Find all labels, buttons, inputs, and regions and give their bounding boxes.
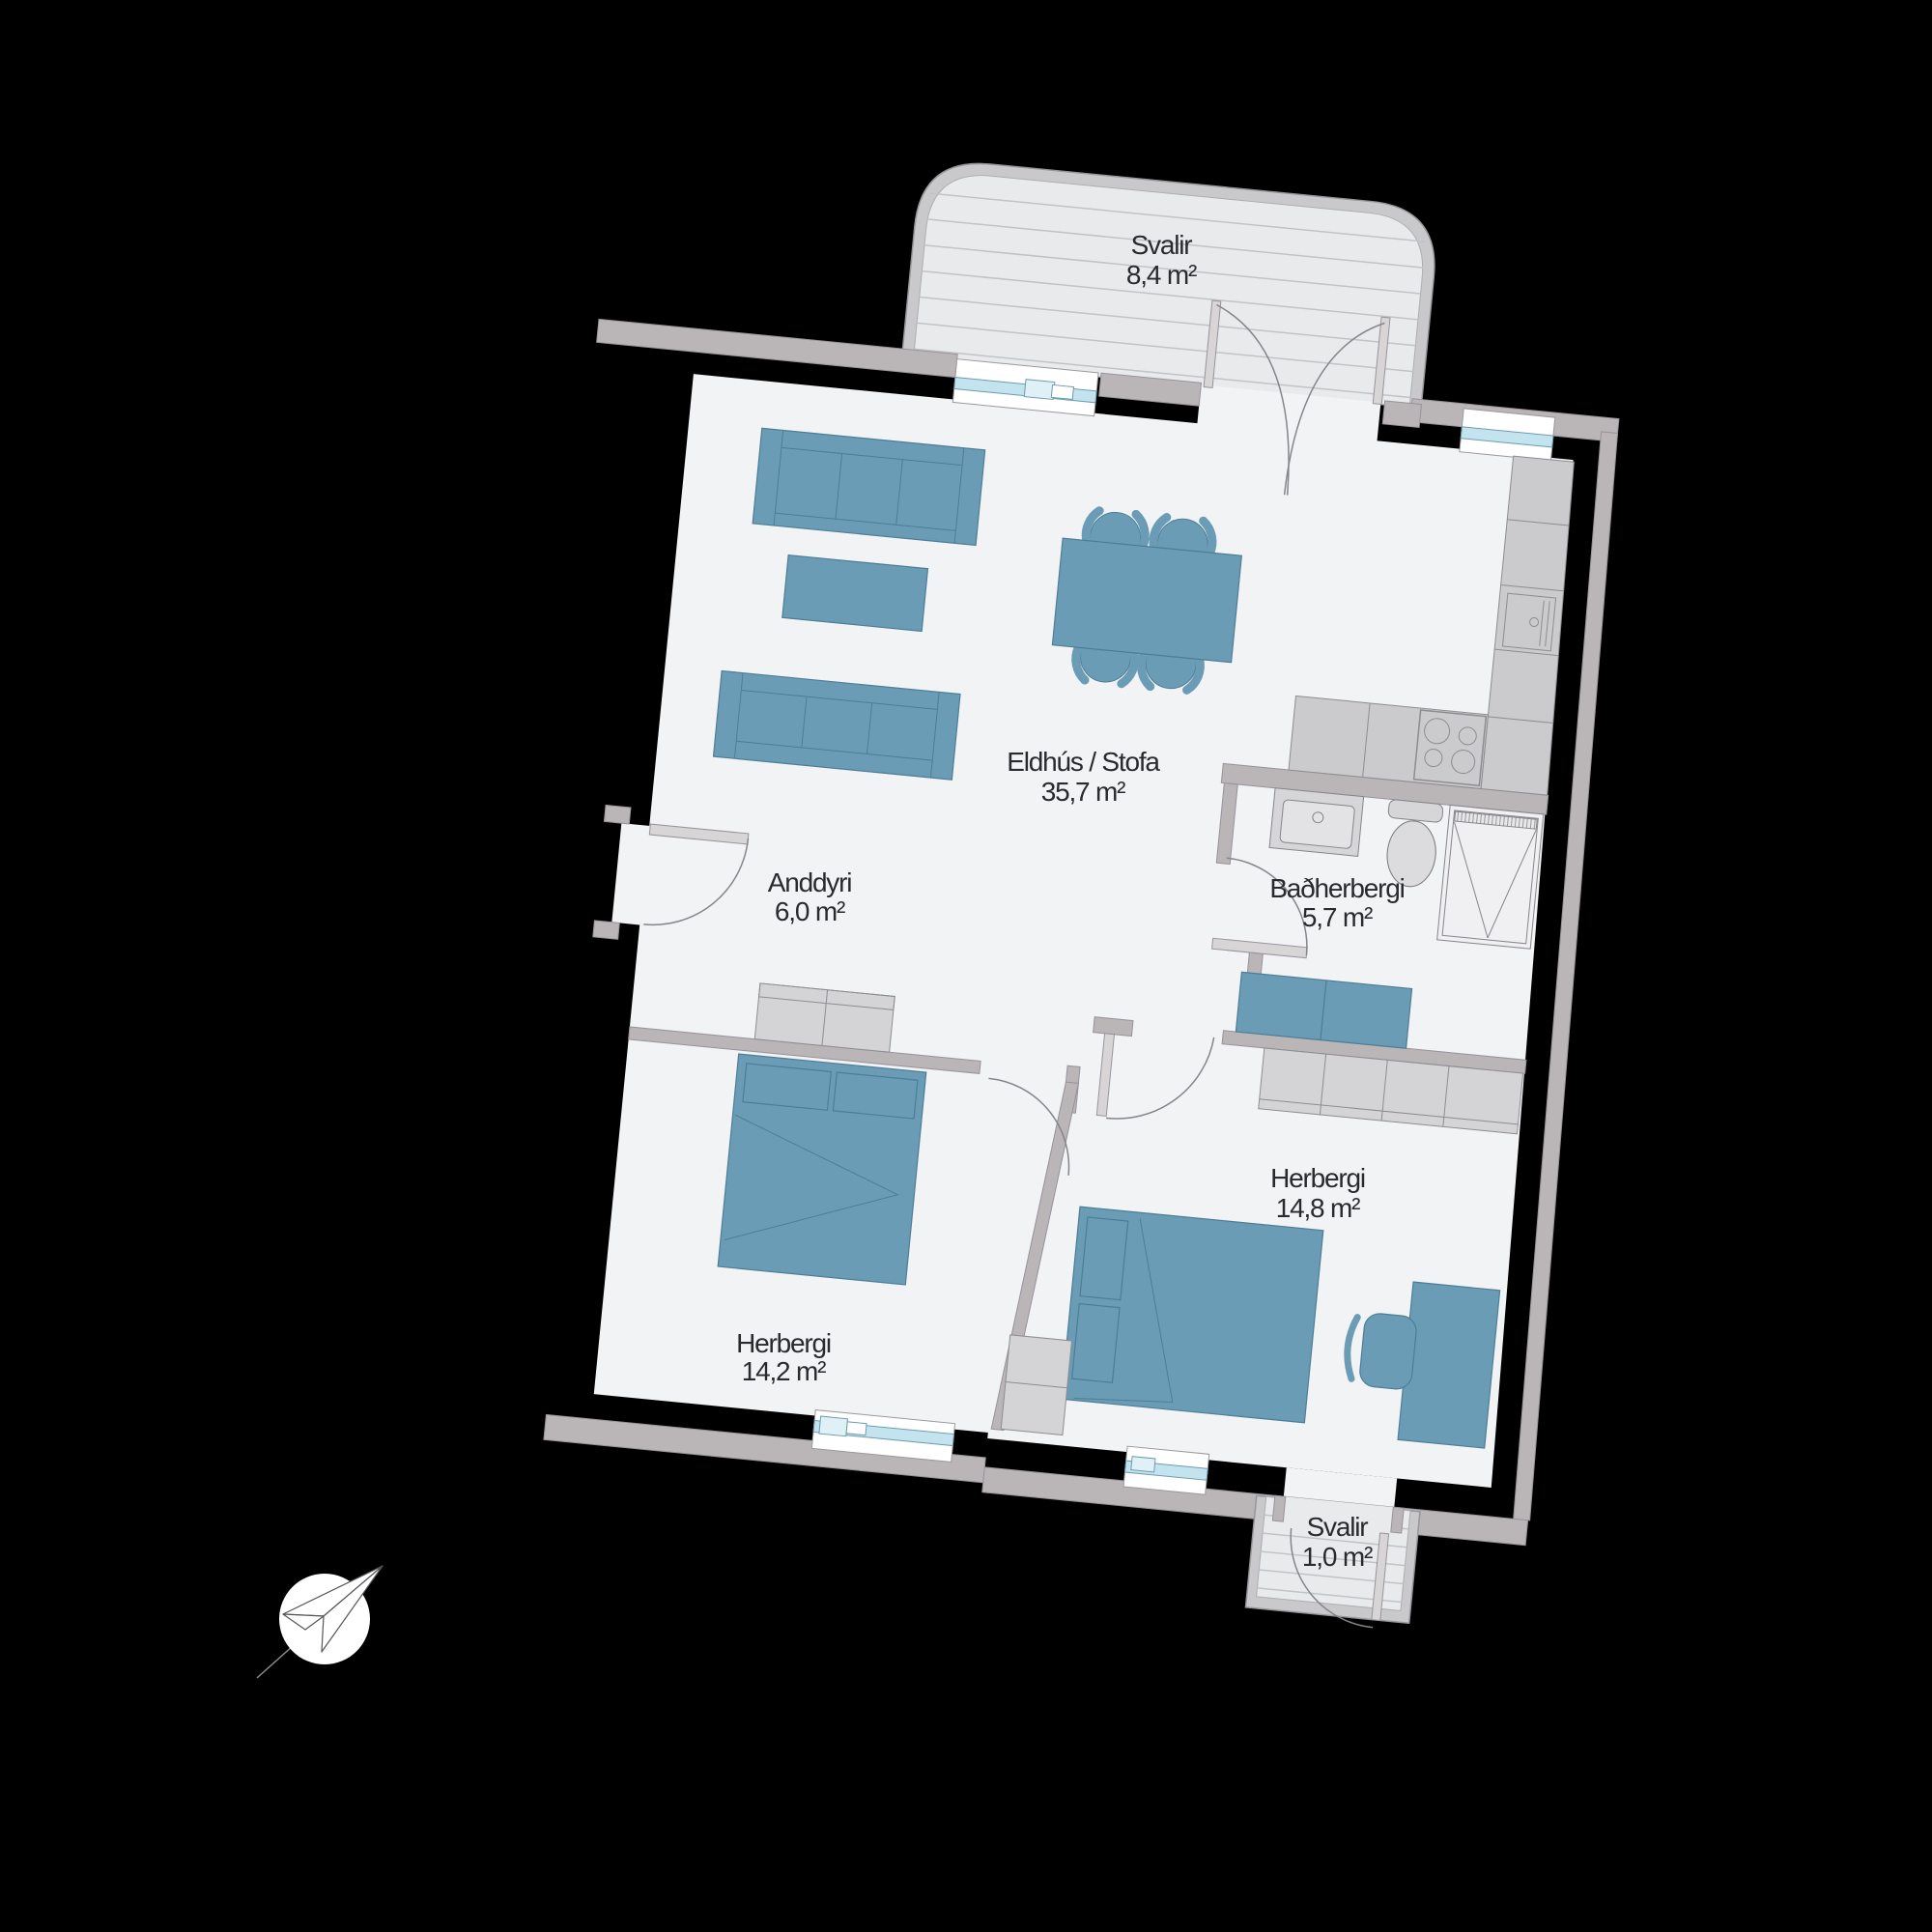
svg-text:Herbergi: Herbergi (1270, 1163, 1365, 1193)
svg-text:14,8 m²: 14,8 m² (1276, 1193, 1360, 1223)
svg-text:Baðherbergi: Baðherbergi (1269, 873, 1404, 903)
svg-text:6,0 m²: 6,0 m² (775, 896, 845, 926)
svg-text:Svalir: Svalir (1307, 1512, 1369, 1542)
svg-text:Svalir: Svalir (1131, 230, 1193, 260)
svg-text:1,0 m²: 1,0 m² (1302, 1542, 1373, 1572)
svg-text:Herbergi: Herbergi (736, 1328, 831, 1358)
svg-text:14,2 m²: 14,2 m² (742, 1356, 826, 1386)
svg-text:8,4 m²: 8,4 m² (1126, 260, 1197, 290)
svg-text:5,7 m²: 5,7 m² (1302, 902, 1373, 932)
svg-text:Eldhús / Stofa: Eldhús / Stofa (1007, 747, 1160, 777)
svg-text:Anddyri: Anddyri (768, 867, 852, 897)
svg-text:35,7 m²: 35,7 m² (1041, 777, 1125, 807)
